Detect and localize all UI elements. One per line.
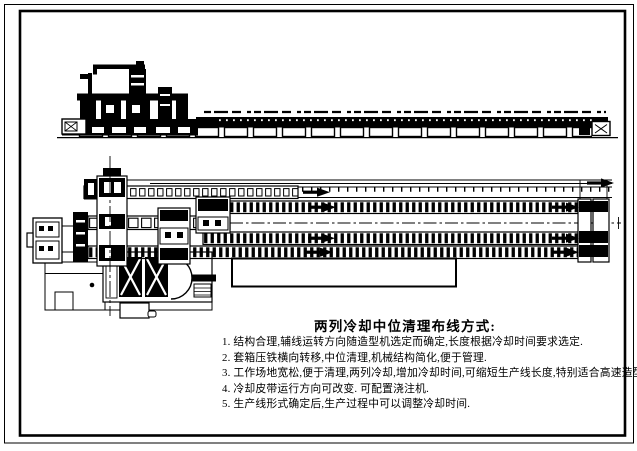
- mid-transfer-assembly-2: [196, 197, 230, 233]
- service-box: [120, 303, 156, 318]
- auxiliary-line-top: [84, 179, 612, 200]
- left-cabinet: [62, 119, 86, 134]
- plan-view: [27, 156, 621, 318]
- machine-arm: [192, 275, 216, 282]
- note-line-4: 4. 冷却皮带运行方向可改变. 可配置浇注机.: [222, 382, 637, 398]
- right-transfer-station: [578, 180, 609, 262]
- cooling-line-1: [203, 201, 578, 214]
- transfer-car-left: [97, 168, 127, 266]
- turnaround-column: [73, 212, 88, 262]
- note-line-2: 2. 套箱压铁横向转移,中位清理,机械结构简化,便于管理.: [222, 351, 637, 367]
- pit-outline: [232, 259, 456, 287]
- pusher-machine: [27, 218, 73, 263]
- molding-machine-elevation: [62, 61, 198, 136]
- cooling-line-2: [203, 232, 578, 245]
- mid-transfer-assembly-1: [158, 208, 190, 264]
- notes-list: 1. 结构合理,辅线运转方向随造型机选定而确定,长度根据冷却时间要求选定. 2.…: [222, 335, 637, 413]
- note-line-5: 5. 生产线形式确定后,生产过程中可以调整冷却时间.: [222, 397, 637, 413]
- auxiliary-rails: [84, 180, 612, 184]
- note-line-1: 1. 结构合理,辅线运转方向随造型机选定而确定,长度根据冷却时间要求选定.: [222, 335, 637, 351]
- drawing-sheet: 两列冷却中位清理布线方式: 1. 结构合理,辅线运转方向随造型机选定而确定,长度…: [0, 0, 637, 451]
- anchor-dot: [90, 283, 95, 288]
- conveyor-end-unit: [592, 122, 610, 136]
- flow-arrow: [303, 188, 330, 197]
- note-line-3: 3. 工作场地宽松,便于清理,两列冷却,增加冷却时间,可缩短生产线长度,特别适合…: [222, 366, 637, 382]
- drawing-title: 两列冷却中位清理布线方式:: [314, 315, 496, 335]
- elevation-view: [57, 61, 618, 138]
